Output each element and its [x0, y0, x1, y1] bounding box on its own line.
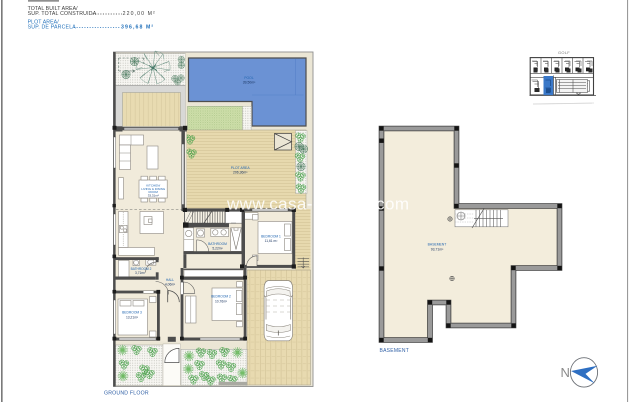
svg-text:HALL: HALL [166, 278, 174, 282]
svg-text:220,00 M²: 220,00 M² [123, 11, 156, 17]
svg-text:3,71m²: 3,71m² [135, 271, 145, 275]
svg-text:11,61 m²: 11,61 m² [265, 239, 279, 243]
svg-text:BEDROOM 1: BEDROOM 1 [261, 234, 281, 238]
svg-text:PLOT AREA: PLOT AREA [231, 166, 251, 170]
svg-text:N: N [561, 365, 570, 380]
svg-text:SUP. TOTAL CONSTRUIDA: SUP. TOTAL CONSTRUIDA [28, 11, 97, 17]
svg-text:SUP. DE PARCELA: SUP. DE PARCELA [28, 25, 77, 31]
svg-text:396,68 M²: 396,68 M² [121, 24, 154, 30]
svg-text:GOLF: GOLF [558, 50, 570, 55]
svg-text:206,36m²: 206,36m² [233, 171, 248, 175]
svg-text:BATHROOM: BATHROOM [208, 242, 227, 246]
svg-text:39,50m²: 39,50m² [243, 80, 256, 84]
svg-text:www.casa-espana.com: www.casa-espana.com [226, 195, 409, 214]
svg-text:10,76m²: 10,76m² [215, 299, 228, 303]
svg-text:93,71m²: 93,71m² [431, 247, 444, 251]
svg-text:GROUND FLOOR: GROUND FLOOR [104, 390, 149, 396]
svg-text:5,22m²: 5,22m² [212, 247, 223, 251]
svg-text:BASEMENT: BASEMENT [380, 348, 410, 354]
svg-text:BEDROOM 2: BEDROOM 2 [211, 295, 231, 299]
svg-text:4,06m²: 4,06m² [165, 283, 176, 287]
svg-text:BASEMENT: BASEMENT [428, 243, 447, 247]
svg-text:POOL: POOL [244, 76, 254, 80]
svg-text:13,21m²: 13,21m² [126, 315, 139, 319]
svg-text:33,31m²: 33,31m² [148, 193, 159, 197]
svg-text:BEDROOM 3: BEDROOM 3 [122, 311, 142, 315]
